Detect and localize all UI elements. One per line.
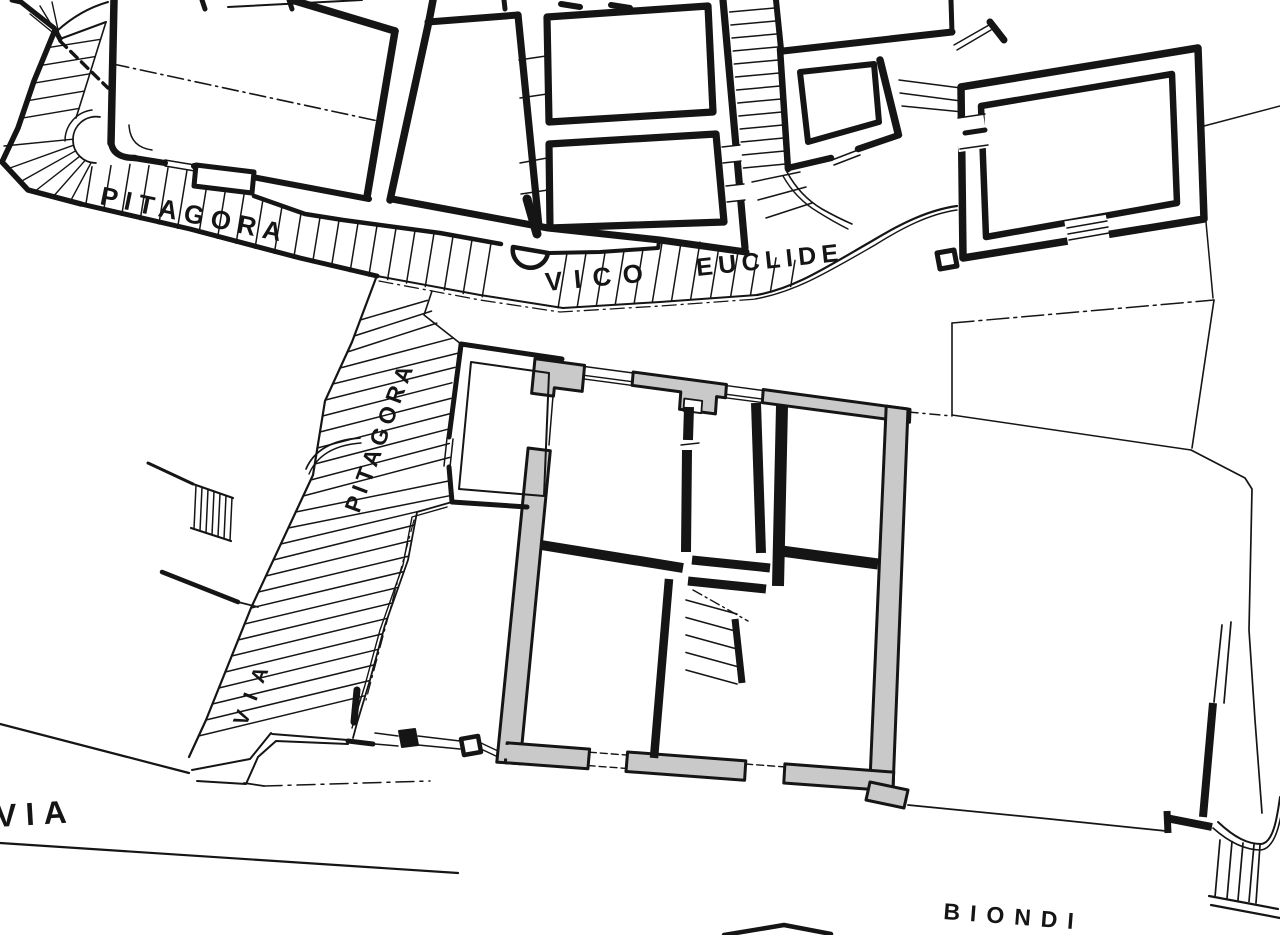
svg-text:VIA: VIA: [0, 793, 77, 834]
